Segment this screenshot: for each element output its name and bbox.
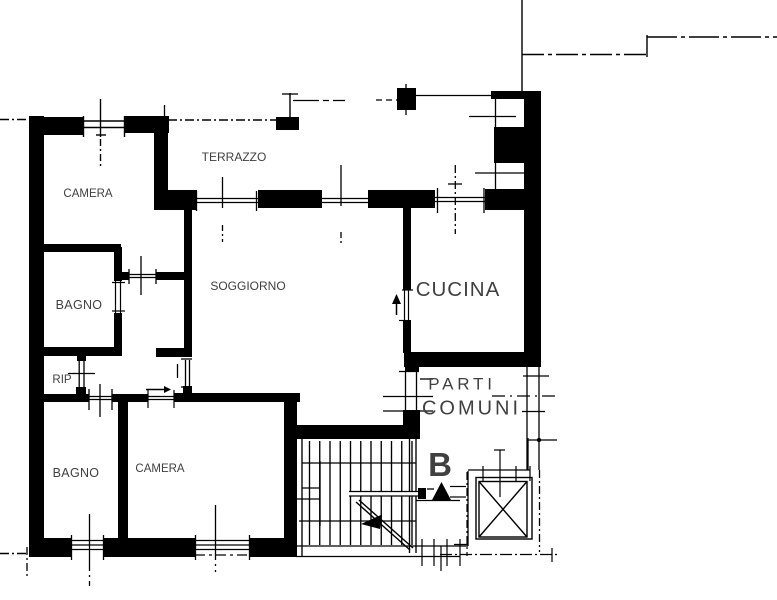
svg-text:CUCINA: CUCINA xyxy=(416,278,501,301)
svg-text:CAMERA: CAMERA xyxy=(63,188,113,200)
svg-text:COMUNI: COMUNI xyxy=(422,398,521,420)
svg-text:B: B xyxy=(428,446,452,483)
svg-text:SOGGIORNO: SOGGIORNO xyxy=(210,279,285,293)
svg-text:RIP: RIP xyxy=(52,374,72,386)
svg-text:BAGNO: BAGNO xyxy=(53,466,100,480)
svg-text:BAGNO: BAGNO xyxy=(56,298,103,312)
svg-text:TERRAZZO: TERRAZZO xyxy=(202,150,267,164)
svg-text:PARTI: PARTI xyxy=(428,375,496,394)
svg-text:CAMERA: CAMERA xyxy=(135,463,185,475)
